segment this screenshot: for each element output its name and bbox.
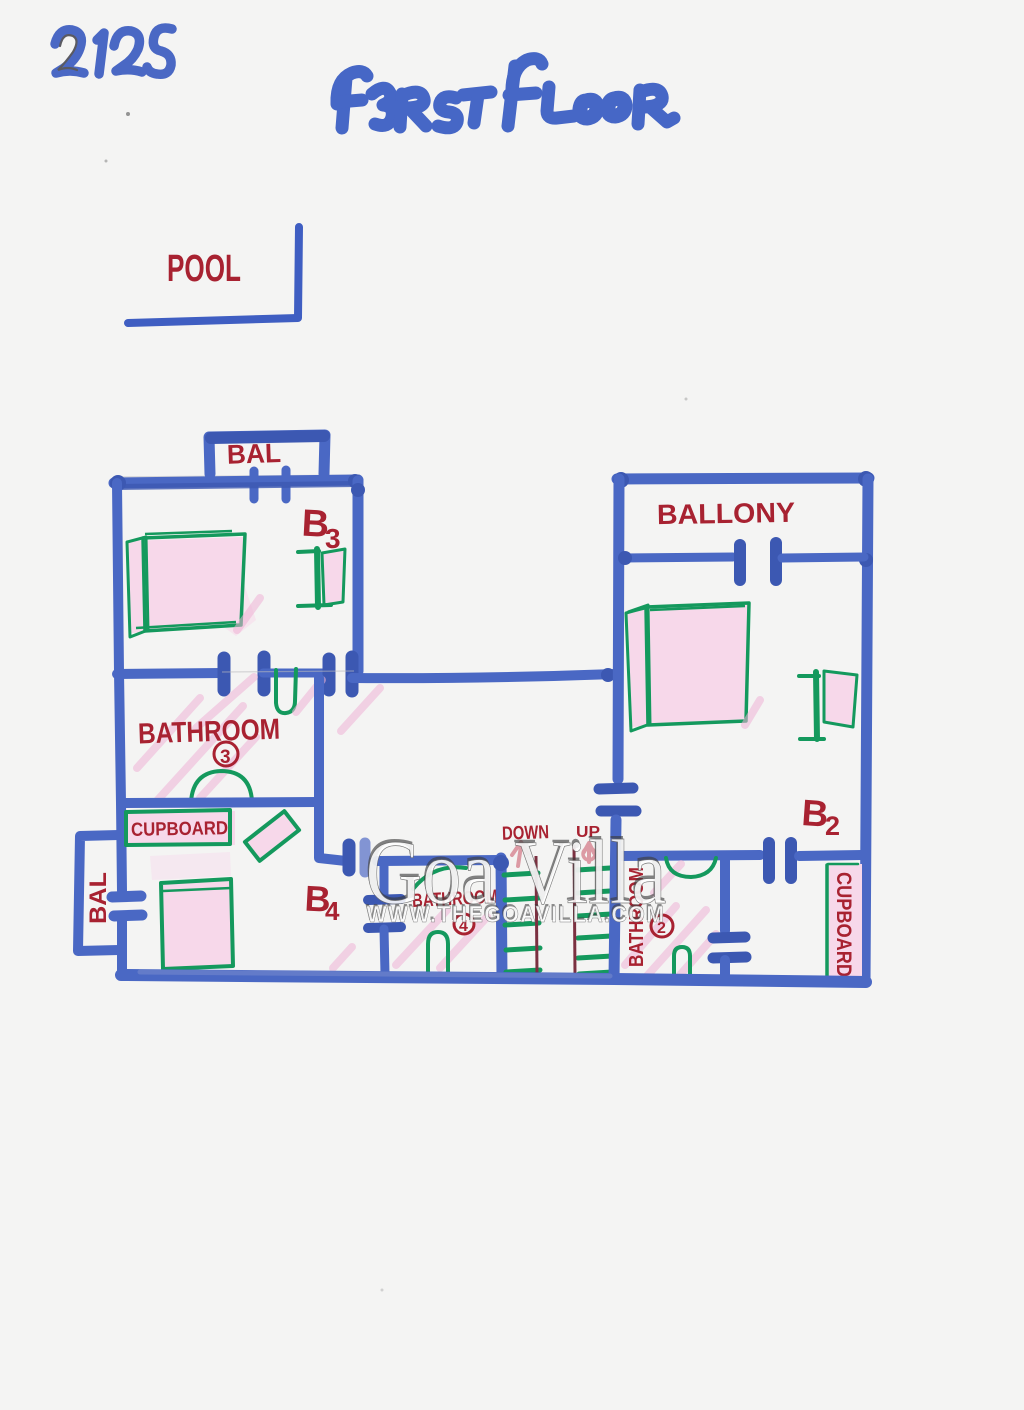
svg-text:3: 3 — [325, 523, 341, 554]
svg-text:WWW.THEGOAVILLA.COM: WWW.THEGOAVILLA.COM — [367, 901, 666, 927]
svg-text:4: 4 — [325, 896, 340, 926]
svg-text:BATHROOM: BATHROOM — [138, 714, 281, 751]
svg-text:3: 3 — [220, 747, 231, 768]
svg-text:BAL: BAL — [226, 438, 281, 470]
svg-text:POOL: POOL — [167, 248, 241, 290]
svg-text:CUPBOARD: CUPBOARD — [131, 818, 228, 841]
svg-text:CUPBOARD: CUPBOARD — [832, 872, 855, 977]
svg-text:2: 2 — [825, 811, 840, 841]
svg-text:BALLONY: BALLONY — [657, 497, 796, 530]
